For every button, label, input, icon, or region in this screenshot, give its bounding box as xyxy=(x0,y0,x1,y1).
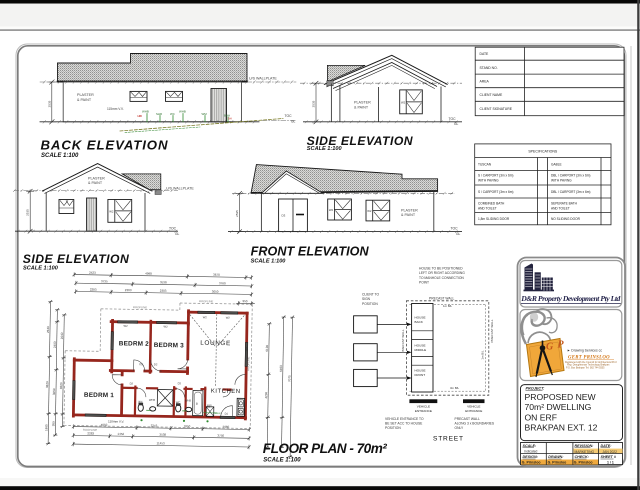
svg-text:SIGN: SIGN xyxy=(362,297,371,301)
svg-text:3620: 3620 xyxy=(59,382,63,389)
svg-text:SCALE:: SCALE: xyxy=(523,444,537,448)
svg-text:WITH PAVING: WITH PAVING xyxy=(551,178,572,182)
svg-text:BE SET ACC TO HOUSE: BE SET ACC TO HOUSE xyxy=(385,422,423,426)
svg-text:& PAINT: & PAINT xyxy=(77,98,92,102)
svg-text:PRECAST WALL: PRECAST WALL xyxy=(429,296,454,300)
svg-text:3050: 3050 xyxy=(212,290,219,294)
svg-text:SCALE 1:100: SCALE 1:100 xyxy=(23,266,59,272)
svg-text:W2: W2 xyxy=(367,209,372,213)
svg-text:2535: 2535 xyxy=(235,210,239,217)
svg-text:& PAINT: & PAINT xyxy=(88,181,103,185)
svg-text:G: G xyxy=(546,342,554,353)
svg-text:CLIENT SIGNATURE: CLIENT SIGNATURE xyxy=(480,107,513,111)
svg-text:OS: OS xyxy=(206,405,210,409)
svg-text:STREET: STREET xyxy=(433,436,464,443)
svg-text:LOUNGE: LOUNGE xyxy=(200,340,231,348)
svg-text:LEFT OR RIGHT ACCORDING: LEFT OR RIGHT ACCORDING xyxy=(419,271,465,275)
svg-text:TOC: TOC xyxy=(169,227,177,231)
svg-text:1 / 1: 1 / 1 xyxy=(607,460,614,464)
svg-text:SPECIFICATIONS: SPECIFICATIONS xyxy=(528,150,558,154)
svg-text:SCALE 1:100: SCALE 1:100 xyxy=(307,146,343,152)
svg-text:2283: 2283 xyxy=(90,288,97,292)
svg-text:BACK ELEVATION: BACK ELEVATION xyxy=(41,137,168,152)
svg-text:3735: 3735 xyxy=(101,279,108,283)
svg-text:W2: W2 xyxy=(203,315,208,319)
svg-text:DATE:: DATE: xyxy=(601,444,613,448)
svg-text:WM: WM xyxy=(202,112,208,116)
svg-text:D1: D1 xyxy=(225,412,229,416)
svg-text:HOUSE TO BE POSITIONED: HOUSE TO BE POSITIONED xyxy=(419,267,463,271)
svg-text:PLASTER: PLASTER xyxy=(77,93,94,97)
svg-text:U/S WALLPLATE: U/S WALLPLATE xyxy=(249,76,277,80)
svg-text:FLOOR PLAN - 70m²: FLOOR PLAN - 70m² xyxy=(263,441,387,456)
svg-text:1452: 1452 xyxy=(117,432,124,436)
svg-text:TUSCAN: TUSCAN xyxy=(478,163,492,167)
svg-text:PRECAST WALL: PRECAST WALL xyxy=(490,319,494,342)
svg-text:TOC: TOC xyxy=(285,114,293,118)
svg-text:JAN 2022: JAN 2022 xyxy=(603,450,618,454)
svg-text:W2: W2 xyxy=(226,316,231,320)
svg-text:ROOFLINE: ROOFLINE xyxy=(83,428,97,432)
svg-text:2303: 2303 xyxy=(160,289,167,293)
svg-text:110mm V.V.: 110mm V.V. xyxy=(108,419,125,423)
svg-text:WHB: WHB xyxy=(185,398,192,402)
svg-text:BEDRM 2: BEDRM 2 xyxy=(119,340,150,348)
svg-text:► Drawing Services cc: ► Drawing Services cc xyxy=(567,349,602,353)
svg-text:ONLY: ONLY xyxy=(455,426,465,430)
svg-text:WITH PAVING: WITH PAVING xyxy=(478,178,499,182)
svg-text:GL: GL xyxy=(291,120,295,124)
svg-text:TOC: TOC xyxy=(451,227,459,231)
svg-text:DRAWN:: DRAWN: xyxy=(548,455,564,459)
svg-text:FRONT ELEVATION: FRONT ELEVATION xyxy=(251,245,370,259)
svg-text:MIDDLE: MIDDLE xyxy=(415,348,427,352)
svg-text:SEPERATE BATH: SEPERATE BATH xyxy=(551,201,578,205)
svg-text:PROJECT:: PROJECT: xyxy=(526,386,546,390)
svg-text:DBL / CARPORT (3m x 6m): DBL / CARPORT (3m x 6m) xyxy=(551,173,590,177)
svg-text:HOUSE: HOUSE xyxy=(415,316,426,320)
svg-text:50mm: 50mm xyxy=(214,412,221,415)
svg-text:2303: 2303 xyxy=(125,288,132,292)
svg-text:D&R Property Development Pty L: D&R Property Development Pty Ltd xyxy=(520,294,620,303)
svg-text:3538: 3538 xyxy=(160,280,167,284)
svg-text:SCALE 1:100: SCALE 1:100 xyxy=(263,457,301,463)
svg-text:PRECAST WALL: PRECAST WALL xyxy=(455,417,480,421)
svg-text:HOUSE: HOUSE xyxy=(415,344,426,348)
svg-text:DESIGN:: DESIGN: xyxy=(523,455,539,459)
svg-text:W2: W2 xyxy=(329,208,334,212)
svg-text:WC: WC xyxy=(138,400,143,404)
svg-text:950: 950 xyxy=(51,421,55,426)
svg-text:4230: 4230 xyxy=(264,392,268,399)
svg-text:BHA: BHA xyxy=(224,114,230,118)
svg-text:S / CARPORT (3m x 6m): S / CARPORT (3m x 6m) xyxy=(478,173,513,177)
svg-text:ON ERF: ON ERF xyxy=(525,412,557,422)
svg-text:U/S WALLPLATE: U/S WALLPLATE xyxy=(166,186,194,190)
svg-text:3538: 3538 xyxy=(159,433,166,437)
svg-text:SCALE 1:100: SCALE 1:100 xyxy=(41,153,79,159)
svg-text:BRAKPAN EXT. 12: BRAKPAN EXT. 12 xyxy=(525,423,598,433)
svg-text:1m B/L: 1m B/L xyxy=(443,304,453,308)
svg-text:950: 950 xyxy=(242,299,247,303)
svg-text:PRECAST WALL: PRECAST WALL xyxy=(401,329,405,352)
svg-text:2040: 2040 xyxy=(60,332,64,339)
svg-text:D2: D2 xyxy=(139,362,143,366)
svg-text:COMBINED BATH: COMBINED BATH xyxy=(478,201,505,205)
svg-text:Indicated: Indicated xyxy=(524,450,538,454)
svg-text:1m B/L: 1m B/L xyxy=(481,350,485,360)
svg-text:1805: 1805 xyxy=(44,424,48,431)
svg-text:PLASTER: PLASTER xyxy=(401,208,418,212)
svg-text:7075: 7075 xyxy=(287,375,291,382)
svg-text:1,8m SLIDING DOOR: 1,8m SLIDING DOOR xyxy=(478,217,510,221)
svg-text:POSITION: POSITION xyxy=(362,302,378,306)
svg-text:3760: 3760 xyxy=(219,281,226,285)
svg-text:2535: 2535 xyxy=(47,100,51,107)
svg-text:P: P xyxy=(558,340,565,351)
svg-text:2400: 2400 xyxy=(53,341,57,348)
svg-text:P.O. Box Brakpan Tel: 082 744: P.O. Box Brakpan Tel: 082 744 5555 xyxy=(566,366,605,369)
svg-text:W2: W2 xyxy=(245,346,249,351)
svg-text:GL: GL xyxy=(175,232,179,236)
svg-text:SCALE 1:100: SCALE 1:100 xyxy=(251,259,287,265)
svg-text:BACK: BACK xyxy=(415,320,424,324)
svg-text:S / CARPORT (3m x 6m): S / CARPORT (3m x 6m) xyxy=(478,190,513,194)
svg-text:MARKETING: MARKETING xyxy=(575,450,595,454)
svg-text:D2: D2 xyxy=(178,381,182,385)
svg-text:3620: 3620 xyxy=(45,381,49,388)
svg-text:D2: D2 xyxy=(130,382,134,386)
svg-text:CLIENT TO: CLIENT TO xyxy=(362,293,379,297)
svg-text:POSITION: POSITION xyxy=(385,426,401,430)
svg-text:TOC: TOC xyxy=(449,117,457,121)
svg-text:PLASTER: PLASTER xyxy=(88,176,105,180)
svg-text:PROPOSED NEW: PROPOSED NEW xyxy=(525,392,597,402)
svg-text:2540: 2540 xyxy=(46,326,50,333)
svg-text:SHR: SHR xyxy=(156,112,162,116)
svg-text:NO SLIDING DOOR: NO SLIDING DOOR xyxy=(551,217,581,221)
svg-text:115mm V.V.: 115mm V.V. xyxy=(107,107,124,111)
svg-text:BEDRM 3: BEDRM 3 xyxy=(154,342,185,350)
svg-text:ENTRANCE: ENTRANCE xyxy=(465,409,482,413)
svg-text:G. Prinsloo: G. Prinsloo xyxy=(548,461,567,465)
svg-text:HOUSE: HOUSE xyxy=(415,369,426,373)
svg-text:G. Prinsloo: G. Prinsloo xyxy=(574,461,593,465)
svg-text:FRONT: FRONT xyxy=(415,373,426,377)
svg-text:3750: 3750 xyxy=(217,434,224,438)
svg-text:SIDE ELEVATION: SIDE ELEVATION xyxy=(23,252,130,266)
svg-text:AND TOILET: AND TOILET xyxy=(551,206,570,210)
svg-text:WHB: WHB xyxy=(149,398,156,402)
svg-text:WHB: WHB xyxy=(142,110,149,114)
svg-text:PLASTER: PLASTER xyxy=(354,101,371,105)
svg-text:SHEET #: SHEET # xyxy=(601,455,617,459)
svg-text:W2: W2 xyxy=(401,101,406,105)
svg-text:VEHICLE ENTRANCE TO: VEHICLE ENTRANCE TO xyxy=(385,417,424,421)
svg-text:2535: 2535 xyxy=(26,209,30,216)
svg-text:11453: 11453 xyxy=(157,441,166,445)
svg-text:ALONG 3 x BOUNDARIES: ALONG 3 x BOUNDARIES xyxy=(455,422,495,426)
svg-text:ENTRANCE: ENTRANCE xyxy=(415,409,432,413)
svg-text:3059: 3059 xyxy=(52,388,56,395)
svg-text:ROOFLINE: ROOFLINE xyxy=(199,299,213,303)
svg-text:GABLE: GABLE xyxy=(551,163,562,167)
svg-text:& PAINT: & PAINT xyxy=(401,213,416,217)
svg-text:W2: W2 xyxy=(124,324,129,328)
svg-text:WHB: WHB xyxy=(179,110,186,114)
svg-text:AREA: AREA xyxy=(480,80,490,84)
svg-text:AND TOILET: AND TOILET xyxy=(478,206,497,210)
svg-text:TO MANHOLE CONNECTION: TO MANHOLE CONNECTION xyxy=(419,276,464,280)
svg-text:D2: D2 xyxy=(154,362,158,366)
svg-text:POINT: POINT xyxy=(419,281,429,285)
svg-text:G. Prinsloo: G. Prinsloo xyxy=(522,461,541,465)
svg-text:STAND NO.: STAND NO. xyxy=(480,66,498,70)
svg-text:3m B/L: 3m B/L xyxy=(450,386,460,390)
svg-text:D3: D3 xyxy=(282,214,286,218)
svg-text:W2: W2 xyxy=(164,325,169,329)
svg-text:CLIENT NAME: CLIENT NAME xyxy=(480,93,503,97)
svg-text:DBL / CARPORT (3m x 6m): DBL / CARPORT (3m x 6m) xyxy=(551,190,590,194)
svg-text:B: B xyxy=(196,402,198,406)
svg-text:GL: GL xyxy=(456,232,460,236)
svg-text:WC: WC xyxy=(170,112,175,116)
svg-text:VEHICLE: VEHICLE xyxy=(417,404,430,408)
svg-text:2423: 2423 xyxy=(89,271,96,275)
svg-text:6190: 6190 xyxy=(265,345,269,352)
svg-text:WC: WC xyxy=(176,400,181,404)
svg-text:GL: GL xyxy=(454,122,458,126)
svg-text:3670: 3670 xyxy=(213,273,220,277)
svg-text:70m² DWELLING: 70m² DWELLING xyxy=(525,402,592,412)
svg-text:ROOFLINE: ROOFLINE xyxy=(133,305,147,309)
svg-text:VEHICLE: VEHICLE xyxy=(467,404,480,408)
svg-text:W2: W2 xyxy=(109,210,114,214)
svg-text:DATE: DATE xyxy=(480,52,490,56)
svg-text:2283: 2283 xyxy=(87,431,94,435)
svg-text:BEDRM 1: BEDRM 1 xyxy=(84,392,115,400)
svg-text:6460: 6460 xyxy=(279,365,283,372)
svg-text:KITCHEN: KITCHEN xyxy=(211,389,241,395)
svg-text:2535: 2535 xyxy=(312,100,316,107)
svg-text:CHECK:: CHECK: xyxy=(575,455,590,459)
svg-text:4998: 4998 xyxy=(145,272,152,276)
svg-text:& PAINT: & PAINT xyxy=(354,105,369,109)
svg-text:REVISION:: REVISION: xyxy=(575,444,595,448)
